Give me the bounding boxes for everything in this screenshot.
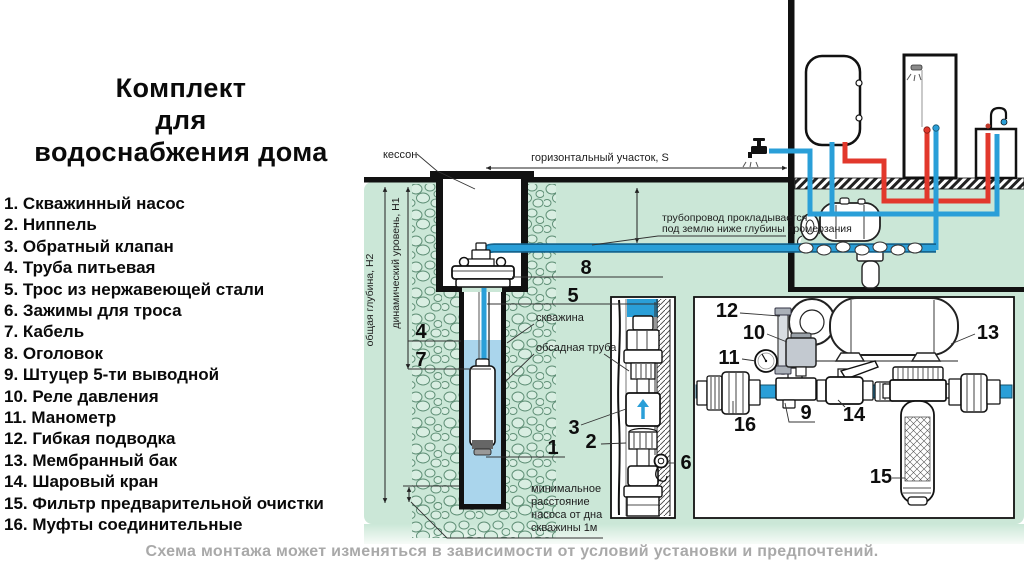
min-distance-note: минимальное расстояние насоса от дна скв…	[531, 483, 603, 534]
shower-hot-valve	[924, 127, 930, 133]
min-distance-line4: скважины 1м	[531, 522, 597, 534]
callout-3-number: 3	[568, 417, 579, 439]
callout-13-number: 13	[977, 322, 999, 344]
total-depth-label: общая глубина, Н2	[364, 253, 376, 346]
callout-8-number: 8	[580, 257, 591, 279]
page: Комплект для водоснабжения дома 1. Скваж…	[0, 0, 1024, 576]
house-foundation-line	[788, 287, 1024, 292]
callout-2-number: 2	[585, 431, 596, 453]
callout-14: 14	[838, 400, 866, 426]
outdoor-tap-icon	[743, 138, 767, 167]
dynamic-level-label: динамический уровень, Н1	[390, 197, 402, 328]
min-distance-line3: насоса от дна	[531, 509, 603, 521]
casing-pipe-label: обсадная труба	[536, 342, 617, 354]
footer-note: Схема монтажа может изменяться в зависим…	[0, 543, 1024, 561]
callout-12-number: 12	[716, 300, 738, 322]
callout-7-number: 7	[415, 349, 426, 371]
callout-6-number: 6	[680, 452, 691, 474]
ground-surface-left	[364, 177, 436, 183]
horizontal-section-dimension: горизонтальный участок, S	[486, 152, 787, 168]
callout-16-number: 16	[734, 414, 756, 436]
shower-cabin	[904, 55, 956, 178]
shower-head-icon	[911, 65, 922, 70]
pipeline-note-line2: под землю ниже глубины промерзания	[662, 223, 852, 235]
detail-nipple	[629, 432, 657, 449]
callout-14-number: 14	[843, 404, 866, 426]
well-label: скважина	[536, 312, 585, 324]
horizontal-section-label: горизонтальный участок, S	[531, 152, 669, 164]
water-heater	[806, 56, 862, 145]
callout-15-number: 15	[870, 466, 892, 488]
submersible-pump	[470, 359, 495, 455]
callout-9-number: 9	[800, 402, 811, 424]
min-distance-line1: минимальное	[531, 483, 601, 495]
water-supply-diagram: общая глубина, Н2 динамический уровень, …	[0, 0, 1024, 576]
min-distance-line2: расстояние	[531, 496, 590, 508]
manometer-detail	[755, 350, 777, 372]
callout-5-number: 5	[567, 285, 578, 307]
callout-10-number: 10	[743, 322, 765, 344]
callout-4-number: 4	[415, 321, 427, 343]
callout-1-number: 1	[547, 437, 558, 459]
caisson-label: кессон	[383, 149, 417, 161]
pump-detail-panel	[611, 297, 675, 518]
callout-11-number: 11	[718, 347, 739, 369]
shower-cold-valve	[933, 125, 939, 131]
ground-surface-right	[528, 177, 790, 183]
